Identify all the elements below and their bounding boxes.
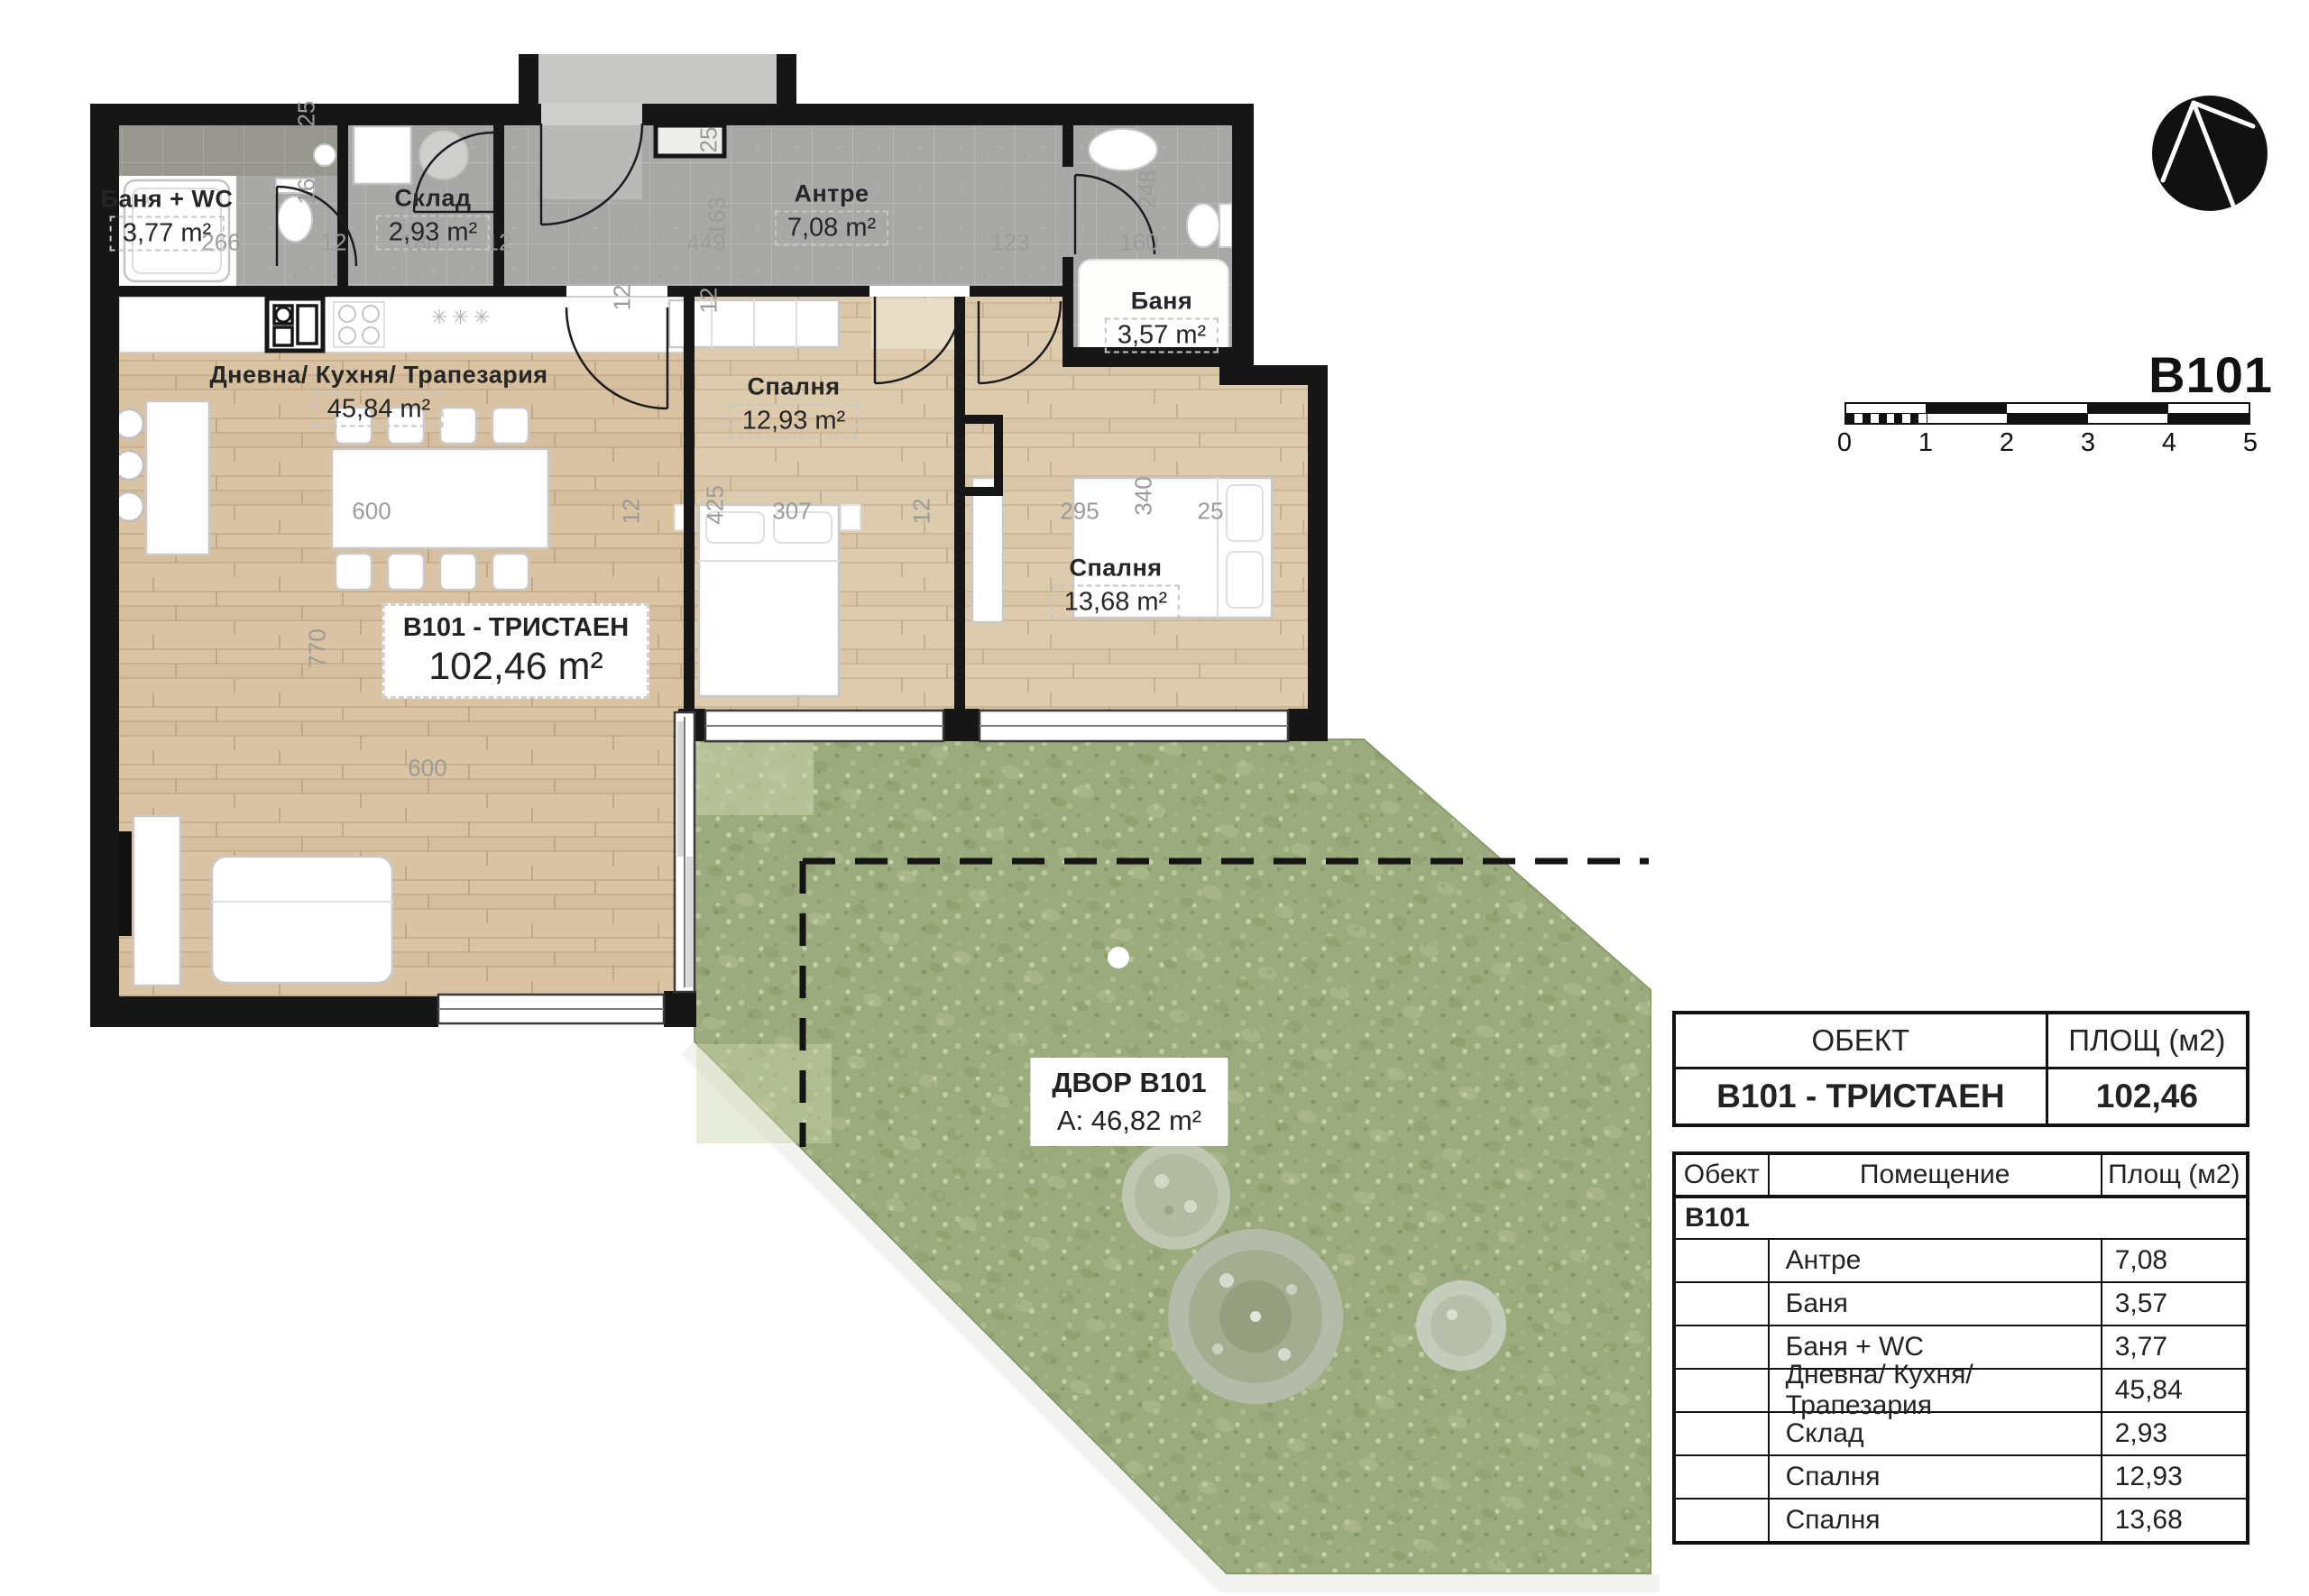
room-name: Баня [1105, 288, 1219, 316]
dim-600: 600 [352, 498, 391, 526]
room-name: Спалня [730, 373, 858, 401]
room-area: 13,68 m² [1052, 585, 1180, 620]
scale-tick-3: 3 [2081, 428, 2095, 458]
room-area: 3,77 m² [110, 216, 224, 252]
dim-163: 163 [704, 197, 731, 235]
scale-bar-rows [1844, 402, 2250, 425]
summary-table: ОБЕКТ ПЛОЩ (м2) B101 - ТРИСТАЕН 102,46 [1672, 1011, 2249, 1127]
table-row: Спалня 13,68 [1676, 1500, 2246, 1541]
dim-295: 295 [1060, 498, 1099, 526]
dim-340: 340 [1130, 476, 1158, 515]
dim-600: 600 [408, 755, 446, 783]
unit-area: 102,46 m² [403, 645, 629, 689]
garden [687, 739, 1660, 1583]
kitchen-marker: ✳✳✳ [431, 306, 494, 329]
washbasin [1089, 129, 1157, 170]
room-name: Дневна/ Кухня/ Трапезария [209, 362, 547, 390]
dim-25: 25 [1198, 498, 1224, 526]
rooms-table-group: B101 [1676, 1198, 2246, 1240]
dim-123: 123 [990, 229, 1029, 257]
tree-large [1168, 1229, 1343, 1404]
row-room: Антре [1770, 1240, 2102, 1281]
yard-area: A: 46,82 m² [1052, 1105, 1206, 1137]
tv-console [133, 816, 180, 986]
tree-medium [1122, 1142, 1230, 1250]
room-label-bathroom: Баня 3,57 m² [1105, 288, 1219, 353]
window-living-south [438, 995, 664, 1023]
room-label-living: Дневна/ Кухня/ Трапезария 45,84 m² [209, 362, 547, 427]
sheet-title: B101 [2038, 345, 2273, 404]
scale-bar-ticks: 0 1 2 3 4 5 [1844, 428, 2250, 459]
dim-425: 425 [702, 485, 730, 524]
dim-12: 12 [695, 288, 723, 314]
table-row: Баня 3,57 [1676, 1283, 2246, 1326]
row-room: Спалня [1770, 1456, 2102, 1498]
row-area: 12,93 [2102, 1456, 2246, 1498]
row-area: 13,68 [2102, 1500, 2246, 1541]
row-room: Склад [1770, 1413, 2102, 1454]
brand-logo-icon [2147, 90, 2273, 216]
room-area: 45,84 m² [315, 392, 443, 427]
room-area: 12,93 m² [730, 404, 858, 439]
dim-770: 770 [304, 628, 332, 667]
dim-12: 12 [618, 499, 646, 525]
table-row: Склад 2,93 [1676, 1413, 2246, 1456]
sofa [212, 857, 392, 983]
scale-tick-5: 5 [2243, 428, 2258, 458]
room-name: Баня + WC [101, 186, 234, 214]
dim-307: 307 [772, 498, 811, 526]
scale-tick-2: 2 [2000, 428, 2014, 458]
table-row: Дневна/ Кухня/ Трапезария 45,84 [1676, 1370, 2246, 1413]
floor-plan-sheet: Баня + WC 3,77 m² Склад 2,93 m² Антре 7,… [0, 0, 2309, 1596]
rooms-table: Обект Помещение Площ (м2) B101 Антре 7,0… [1672, 1151, 2249, 1545]
row-area: 45,84 [2102, 1370, 2246, 1411]
room-label-storage: Склад 2,93 m² [376, 185, 490, 251]
scale-tick-1: 1 [1918, 428, 1933, 458]
summary-row: B101 - ТРИСТАЕН 102,46 [1676, 1069, 2246, 1124]
dim-12: 12 [321, 229, 347, 257]
summary-object: B101 - ТРИСТАЕН [1676, 1069, 2048, 1124]
row-area: 3,57 [2102, 1283, 2246, 1325]
room-name: Спалня [1052, 555, 1180, 582]
table-row: Спалня 12,93 [1676, 1456, 2246, 1500]
row-area: 7,08 [2102, 1240, 2246, 1281]
tv [119, 831, 132, 936]
yard-area-label: ДВОР B101 A: 46,82 m² [1030, 1058, 1228, 1146]
row-area: 3,77 [2102, 1326, 2246, 1368]
window-bedroom-2 [980, 711, 1288, 741]
dim-12: 12 [609, 285, 637, 311]
room-area: 3,57 m² [1105, 318, 1219, 353]
rooms-col-room: Помещение [1770, 1155, 2102, 1195]
room-label-bedroom-1: Спалня 12,93 m² [730, 373, 858, 439]
row-area: 2,93 [2102, 1413, 2246, 1454]
dim-25: 25 [293, 101, 321, 127]
unit-area-label: B101 - ТРИСТАЕН 102,46 m² [382, 603, 649, 699]
summary-area: 102,46 [2048, 1069, 2246, 1124]
room-label-bath-wc: Баня + WC 3,77 m² [101, 186, 234, 252]
dim-163: 163 [293, 165, 321, 204]
room-name: Антре [775, 180, 888, 208]
sink-small [314, 144, 336, 166]
unit-title: B101 - ТРИСТАЕН [403, 613, 629, 643]
room-label-entry: Антре 7,08 m² [775, 180, 888, 246]
glass-wall-living [675, 712, 695, 992]
table-row: Антре 7,08 [1676, 1240, 2246, 1283]
rooms-col-object: Обект [1676, 1155, 1770, 1195]
yard-title: ДВОР B101 [1052, 1067, 1206, 1099]
dim-12: 12 [908, 499, 936, 525]
room-name: Склад [376, 185, 490, 213]
rooms-col-area: Площ (м2) [2102, 1155, 2246, 1195]
scale-bar: 0 1 2 3 4 5 [1844, 402, 2250, 459]
scale-tick-4: 4 [2162, 428, 2176, 458]
room-area: 2,93 m² [376, 216, 490, 251]
tree-small [1416, 1280, 1506, 1371]
row-room: Спалня [1770, 1500, 2102, 1541]
room-label-bedroom-2: Спалня 13,68 m² [1052, 555, 1180, 620]
kitchen-counter [119, 297, 684, 353]
room-area: 7,08 m² [775, 211, 888, 246]
toilet-2 [1187, 204, 1232, 247]
kitchen-island [146, 401, 209, 555]
washing-machine [354, 126, 411, 184]
summary-col-area: ПЛОЩ (м2) [2048, 1014, 2246, 1067]
bed-1 [675, 505, 860, 696]
dim-25: 25 [695, 127, 723, 153]
row-room: Баня [1770, 1283, 2102, 1325]
summary-col-object: ОБЕКТ [1676, 1014, 2048, 1067]
dim-160: 160 [1119, 229, 1158, 257]
wardrobe-2 [972, 478, 1003, 622]
scale-tick-0: 0 [1837, 428, 1852, 458]
dim-248: 248 [1134, 170, 1162, 208]
kitchen-sink [267, 298, 323, 351]
row-room: Дневна/ Кухня/ Трапезария [1770, 1370, 2102, 1411]
window-bedroom-1 [705, 711, 943, 741]
boiler [419, 131, 468, 179]
